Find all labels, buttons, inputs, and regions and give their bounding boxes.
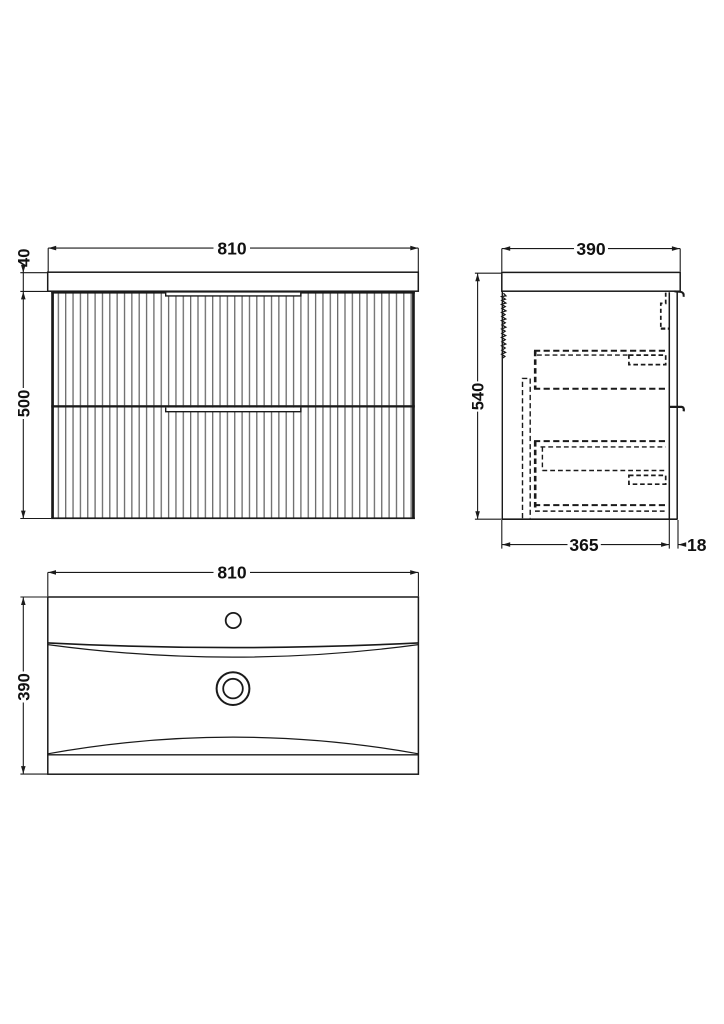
svg-text:810: 810: [217, 238, 246, 258]
svg-text:390: 390: [576, 239, 605, 259]
svg-text:810: 810: [217, 563, 246, 583]
svg-text:390: 390: [16, 673, 34, 701]
svg-text:40: 40: [16, 249, 34, 267]
svg-text:18: 18: [687, 535, 707, 555]
svg-text:540: 540: [469, 383, 487, 411]
svg-text:500: 500: [16, 390, 34, 418]
svg-text:365: 365: [569, 535, 598, 555]
